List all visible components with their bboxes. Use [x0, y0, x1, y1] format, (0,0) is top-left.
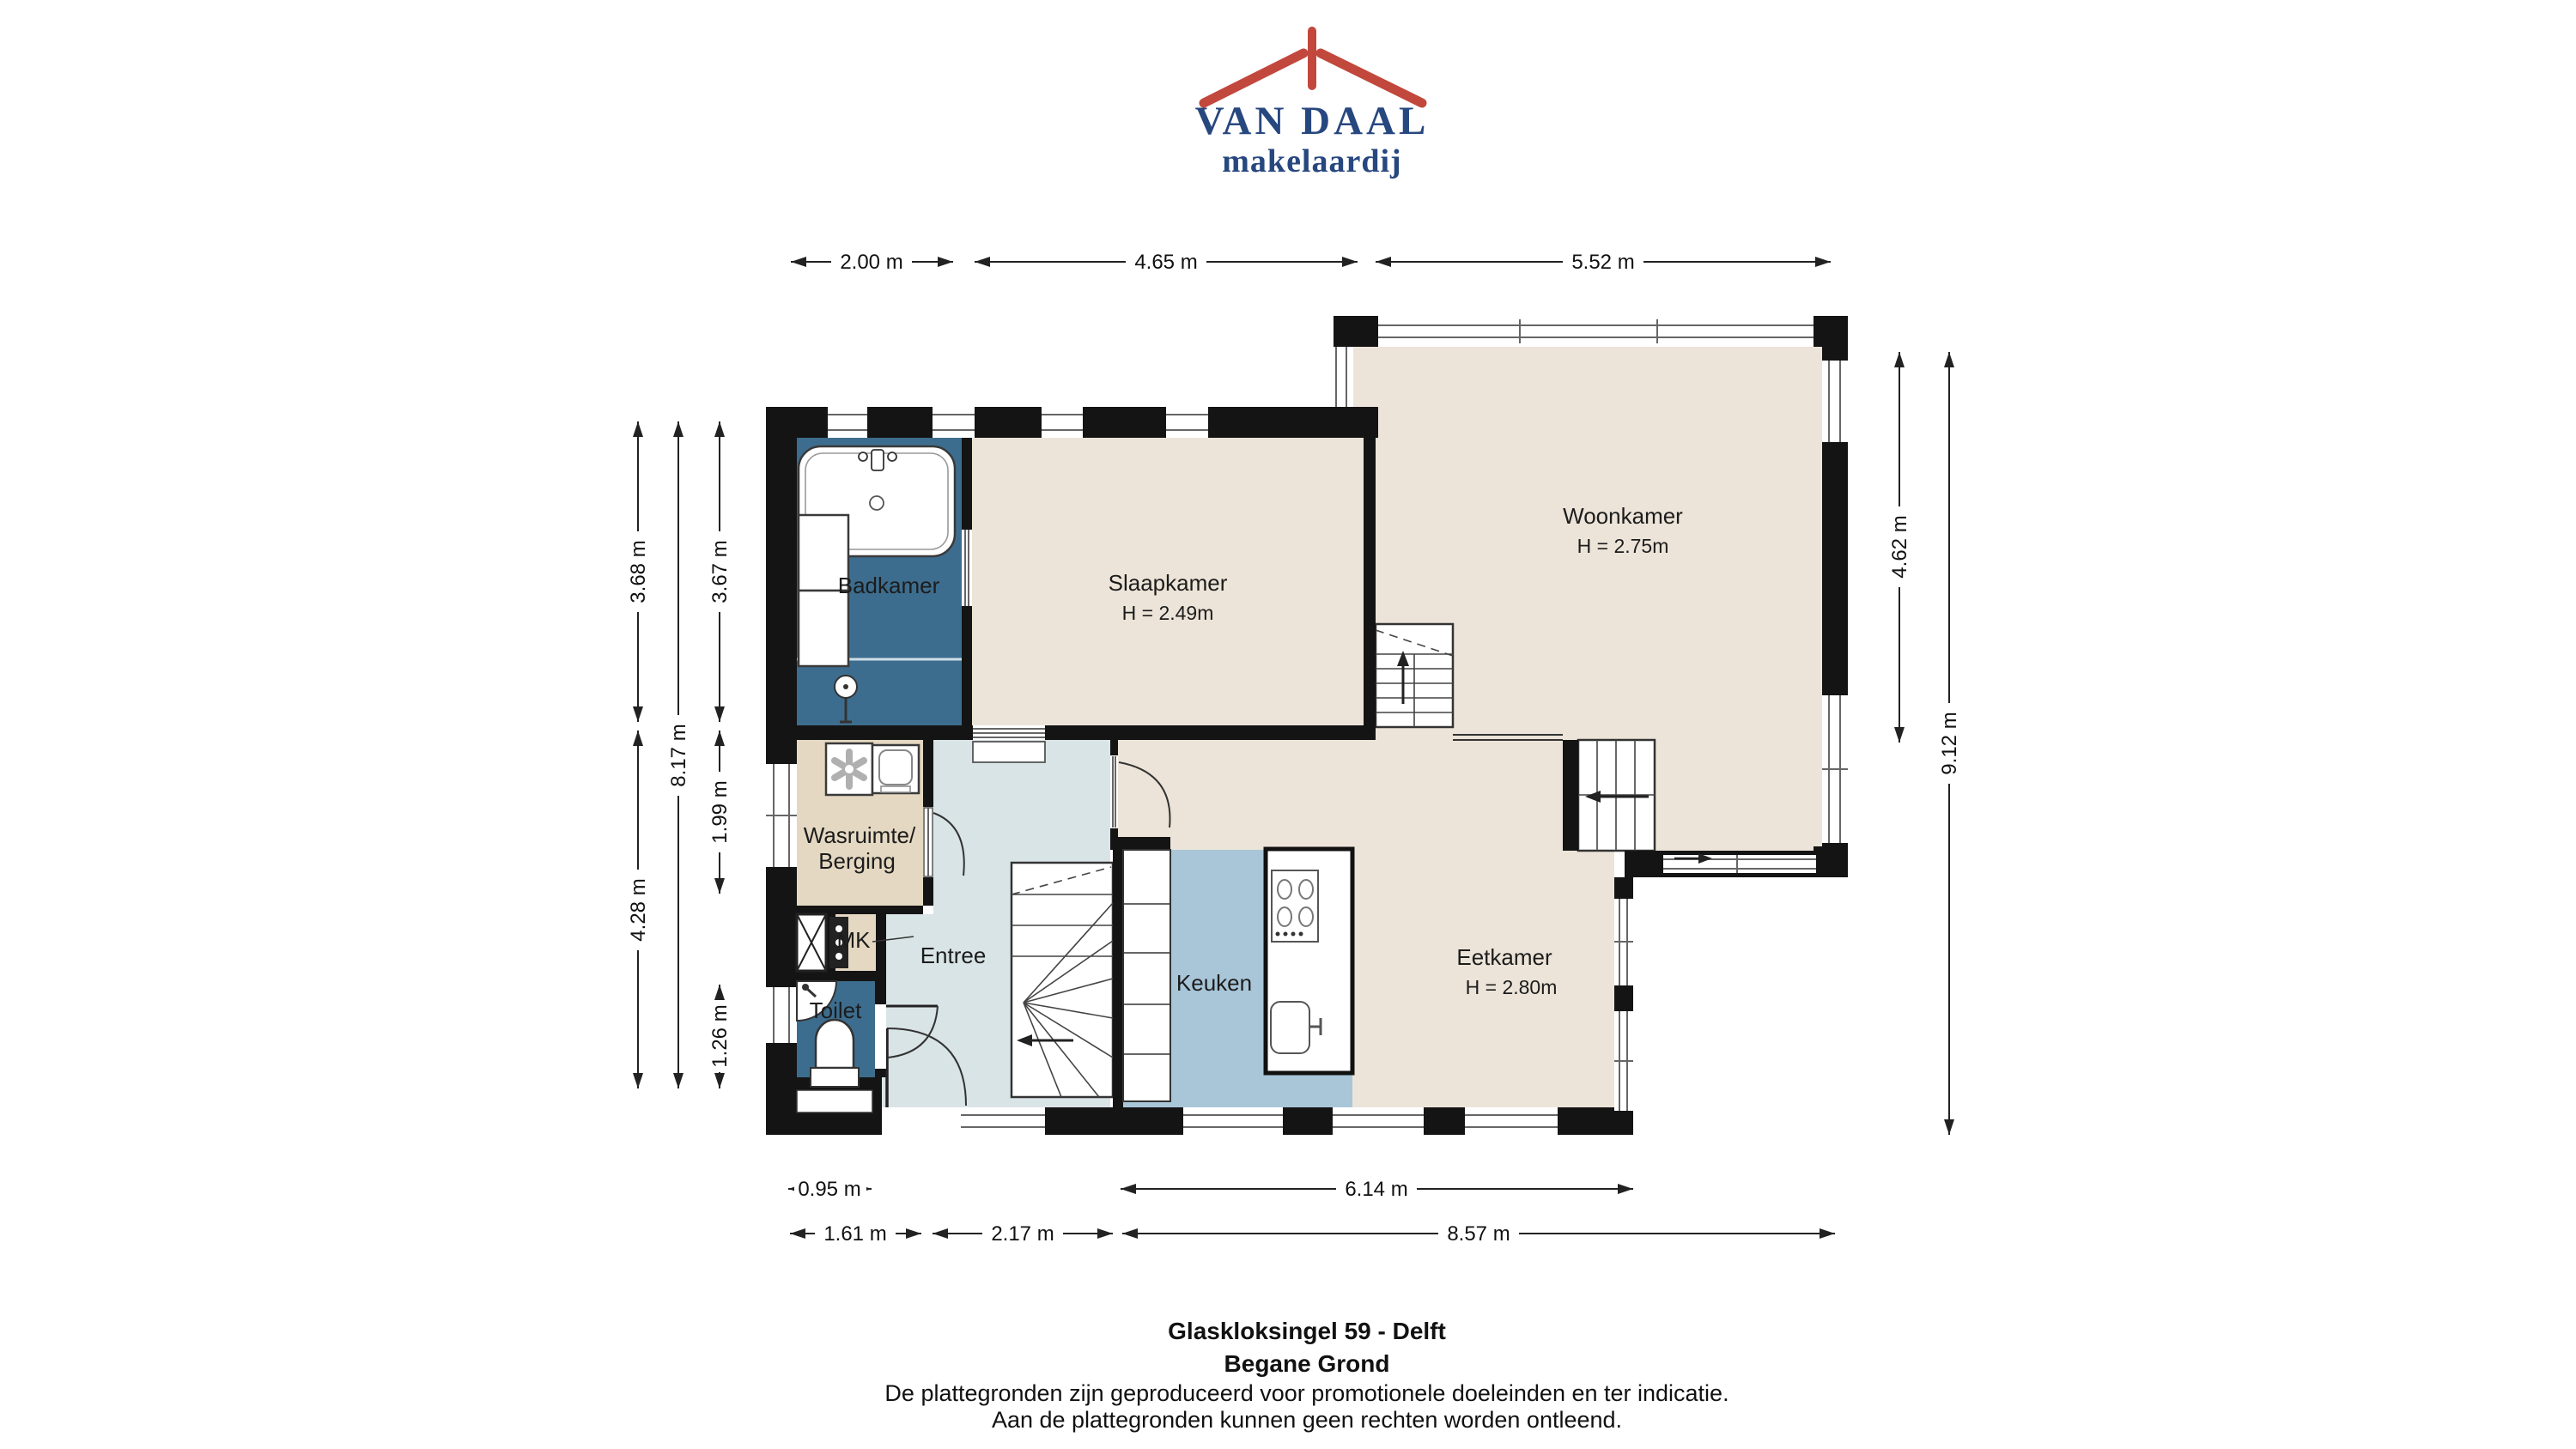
footer: Glaskloksingel 59 - Delft Begane Grond D… — [884, 1318, 1728, 1433]
svg-text:8.57 m: 8.57 m — [1447, 1222, 1510, 1246]
floorplan-canvas: VAN DAAL makelaardij — [0, 0, 2576, 1449]
logo: VAN DAAL makelaardij — [1195, 31, 1430, 179]
window-woonkamer-right-upper — [1822, 361, 1848, 442]
svg-text:8.17 m: 8.17 m — [667, 724, 690, 786]
window-slaapkamer-door — [973, 725, 1045, 740]
window — [1042, 407, 1083, 438]
window-eetkamer-right-upper — [1614, 899, 1633, 985]
washer-icon — [826, 743, 872, 795]
dim-left-inner-1: 3.67 m — [707, 421, 732, 722]
logo-roof-right — [1321, 53, 1422, 103]
wall-slaapkamer-woonkamer — [1364, 438, 1376, 740]
stove-icon — [1272, 870, 1318, 942]
entrance-step — [797, 1090, 872, 1113]
room-label-woonkamer: Woonkamer — [1563, 503, 1683, 529]
window-connector — [1331, 347, 1353, 407]
room-height-eetkamer: H = 2.80m — [1466, 976, 1558, 998]
wall-mk-bottom — [797, 971, 886, 981]
window-toilet — [766, 987, 797, 1043]
window — [1333, 1107, 1424, 1135]
svg-text:6.14 m: 6.14 m — [1345, 1178, 1407, 1201]
winder-staircase — [1012, 863, 1113, 1097]
wall-woonkamer-top-corner-left — [1334, 316, 1378, 347]
window — [1166, 407, 1208, 438]
wall-woonkamer-top-corner-right — [1814, 316, 1848, 347]
svg-text:3.68 m: 3.68 m — [627, 540, 650, 603]
kitchen-island — [1266, 849, 1352, 1073]
wall-interior-south — [797, 725, 1376, 740]
svg-text:2.17 m: 2.17 m — [991, 1222, 1054, 1246]
room-height-slaapkamer: H = 2.49m — [1122, 602, 1214, 624]
window — [961, 1107, 1045, 1135]
dim-right-outer: 9.12 m — [1936, 352, 1962, 1135]
room-height-woonkamer: H = 2.75m — [1577, 535, 1669, 557]
window — [1465, 1107, 1558, 1135]
vanity-cabinet — [799, 591, 848, 666]
room-label-berging: Berging — [818, 848, 896, 874]
wall-entree-keuken — [1113, 850, 1123, 1107]
room-label-keuken: Keuken — [1176, 970, 1252, 996]
window-eetkamer-right-lower — [1614, 1011, 1633, 1111]
logo-name: VAN DAAL — [1195, 99, 1430, 143]
room-label-eetkamer: Eetkamer — [1456, 944, 1552, 970]
footer-disclaimer-1: De plattegronden zijn geproduceerd voor … — [884, 1380, 1728, 1406]
dim-top-2: 4.65 m — [975, 249, 1358, 275]
hatch-icon — [797, 914, 826, 971]
window-woonkamer-right-lower — [1822, 695, 1848, 843]
svg-text:9.12 m: 9.12 m — [1938, 712, 1961, 774]
dim-top-1: 2.00 m — [791, 249, 953, 275]
svg-text:1.99 m: 1.99 m — [708, 780, 732, 843]
dryer-icon — [872, 745, 919, 793]
room-label-badkamer: Badkamer — [838, 573, 940, 598]
footer-floor: Begane Grond — [1224, 1350, 1390, 1377]
badkamer-door — [962, 530, 972, 606]
dim-top-3: 5.52 m — [1376, 249, 1831, 275]
svg-text:0.95 m: 0.95 m — [798, 1178, 860, 1201]
logo-subtitle: makelaardij — [1222, 143, 1401, 179]
room-label-entree: Entree — [920, 943, 987, 968]
window — [1183, 1107, 1283, 1135]
svg-text:4.62 m: 4.62 m — [1888, 515, 1911, 578]
window — [933, 407, 975, 438]
kitchen-cabinets — [1123, 850, 1170, 1101]
room-label-slaapkamer: Slaapkamer — [1109, 570, 1228, 596]
wall-landing — [1563, 740, 1578, 851]
svg-text:3.67 m: 3.67 m — [708, 540, 732, 603]
room-label-mk: MK — [837, 927, 872, 953]
dim-bottom-outer-1: 1.61 m — [790, 1221, 921, 1246]
dim-left-outer-2: 4.28 m — [625, 731, 651, 1088]
dim-left-inner-3: 1.26 m — [707, 985, 732, 1088]
wall-cabinet-cap — [1110, 837, 1170, 850]
dim-bottom-outer-3: 8.57 m — [1122, 1221, 1835, 1246]
room-label-toilet: Toilet — [810, 997, 862, 1023]
landing-staircase — [1578, 740, 1655, 851]
svg-text:2.00 m: 2.00 m — [840, 251, 902, 274]
svg-text:1.61 m: 1.61 m — [823, 1222, 886, 1246]
dim-left-middle: 8.17 m — [665, 421, 691, 1088]
dim-left-outer-1: 3.68 m — [625, 421, 651, 722]
toilet-icon — [811, 1020, 859, 1087]
svg-text:4.65 m: 4.65 m — [1134, 251, 1197, 274]
svg-text:4.28 m: 4.28 m — [627, 878, 650, 941]
footer-address: Glaskloksingel 59 - Delft — [1168, 1318, 1446, 1344]
logo-roof-left — [1204, 53, 1303, 103]
footer-disclaimer-2: Aan de plattegronden kunnen geen rechten… — [992, 1407, 1622, 1433]
window-wasruimte — [766, 764, 797, 867]
window-woonkamer-top — [1378, 319, 1814, 343]
dim-bottom-outer-2: 2.17 m — [933, 1221, 1113, 1246]
door-mat — [973, 742, 1045, 762]
svg-text:5.52 m: 5.52 m — [1571, 251, 1634, 274]
dim-bottom-inner-2: 6.14 m — [1121, 1176, 1633, 1202]
dim-bottom-inner-1: 0.95 m — [788, 1176, 872, 1202]
room-label-wasruimte: Wasruimte/ — [804, 822, 916, 848]
floorplan-page: VAN DAAL makelaardij — [0, 0, 2576, 1449]
upper-staircase — [1376, 624, 1453, 727]
wall-mk-right — [876, 914, 886, 971]
window — [828, 407, 867, 438]
svg-text:1.26 m: 1.26 m — [708, 1004, 732, 1067]
dim-right-inner: 4.62 m — [1886, 352, 1912, 743]
dim-left-inner-2: 1.99 m — [707, 731, 732, 894]
